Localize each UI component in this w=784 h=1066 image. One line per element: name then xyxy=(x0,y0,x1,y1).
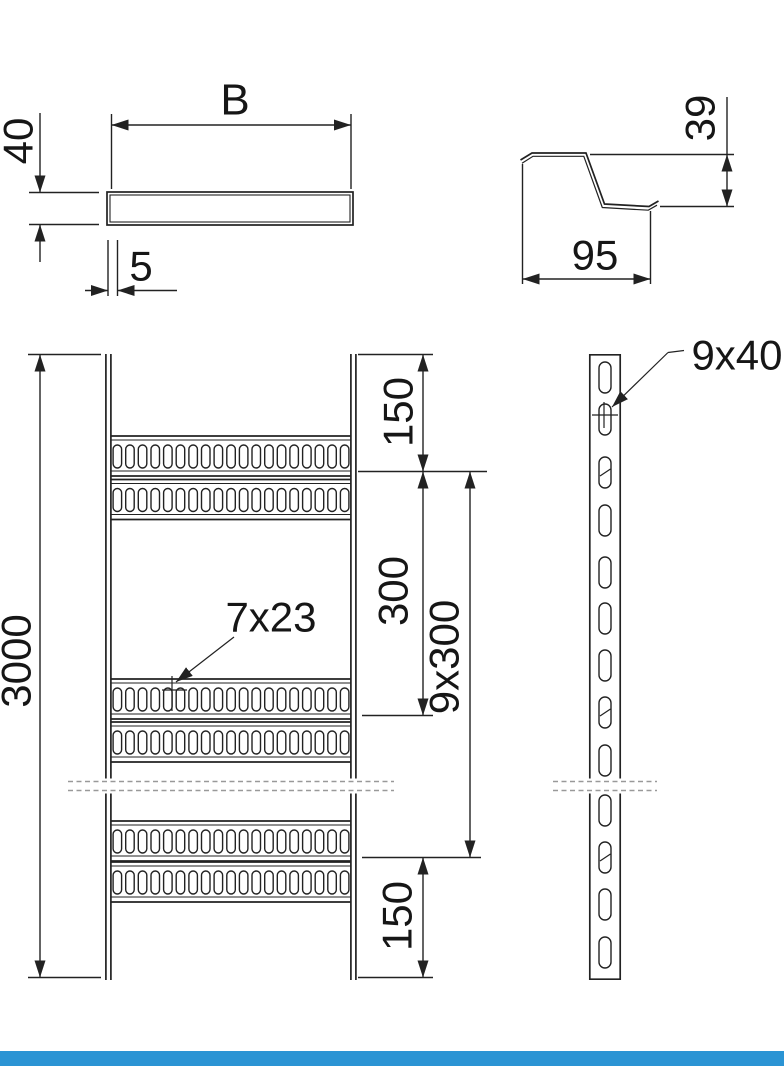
rail-slot xyxy=(599,404,611,435)
rung xyxy=(111,436,351,476)
dim-spacing-right: 150 300 9x300 150 xyxy=(358,355,487,978)
rail-slot xyxy=(599,557,611,588)
dim-5-label: 5 xyxy=(129,243,152,290)
rail-slot xyxy=(599,362,611,393)
cover-inner-outline xyxy=(110,195,350,222)
cover-section-view: B 40 5 xyxy=(0,76,353,297)
rail-slot xyxy=(599,505,611,536)
rung xyxy=(111,722,351,762)
dim-39-label: 39 xyxy=(677,95,724,142)
footer-bar xyxy=(0,1051,784,1066)
dim-height-40: 40 xyxy=(0,113,99,262)
left-rail xyxy=(106,354,111,980)
slot-7x23-label: 7x23 xyxy=(225,594,316,641)
technical-drawing: B 40 5 39 xyxy=(0,0,784,1066)
dim-B-label: B xyxy=(220,76,249,125)
dim-width-95: 95 xyxy=(523,164,651,284)
dim-95-label: 95 xyxy=(572,232,619,279)
rail-slot xyxy=(599,795,611,826)
ladder-front-view: 3000 150 300 9x300 150 7x23 xyxy=(0,354,487,980)
rail-slot xyxy=(599,889,611,920)
dim-height-39: 39 xyxy=(590,95,734,207)
rail-slot xyxy=(599,650,611,681)
rung xyxy=(111,679,351,719)
rung-profile-outer xyxy=(521,153,659,207)
leader-tick xyxy=(668,351,684,353)
rung xyxy=(111,862,351,902)
rail-slot xyxy=(599,745,611,776)
page: B 40 5 39 xyxy=(0,0,784,1066)
rung xyxy=(111,821,351,861)
rail-slot xyxy=(599,603,611,634)
slot-9x40-label: 9x40 xyxy=(691,332,782,379)
right-rail xyxy=(351,354,356,980)
dim-150-bottom-label: 150 xyxy=(374,881,421,951)
dim-150-top-label: 150 xyxy=(375,377,422,447)
rail-side-view: 9x40 xyxy=(553,332,783,981)
dim-300-label: 300 xyxy=(370,556,417,626)
leader-line xyxy=(176,637,234,682)
dim-thickness-5: 5 xyxy=(85,240,177,296)
cover-outline xyxy=(107,192,353,225)
rung-profile-view: 39 95 xyxy=(521,95,735,284)
dim-width-B: B xyxy=(112,76,352,190)
dim-3000-label: 3000 xyxy=(0,614,40,707)
rung xyxy=(111,480,351,520)
dim-9x300-label: 9x300 xyxy=(421,600,468,714)
break-lines-side xyxy=(553,782,657,791)
dim-40-label: 40 xyxy=(0,118,42,165)
rail-slot xyxy=(599,937,611,968)
dim-length-3000: 3000 xyxy=(0,355,101,978)
break-lines-front xyxy=(68,782,394,791)
